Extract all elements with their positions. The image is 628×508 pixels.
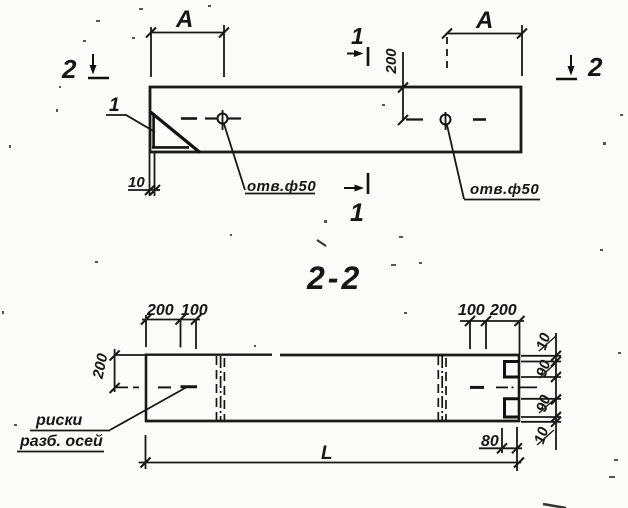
svg-text:10: 10: [128, 174, 145, 191]
svg-text:2: 2: [587, 52, 603, 82]
svg-text:200: 200: [489, 302, 517, 319]
svg-text:200: 200: [383, 48, 400, 75]
svg-text:риски: риски: [35, 412, 83, 429]
svg-text:L: L: [321, 443, 333, 464]
svg-text:отв.ф50: отв.ф50: [247, 178, 316, 195]
svg-text:100: 100: [458, 302, 485, 319]
svg-text:A: A: [175, 6, 193, 33]
svg-text:2-2: 2-2: [306, 260, 362, 296]
svg-text:разб. осей: разб. осей: [19, 433, 103, 450]
svg-text:2: 2: [61, 54, 77, 84]
svg-text:1: 1: [350, 199, 364, 227]
svg-text:1: 1: [351, 23, 364, 49]
svg-text:100: 100: [181, 302, 208, 319]
svg-text:A: A: [475, 7, 493, 34]
svg-text:1: 1: [109, 95, 120, 116]
svg-text:200: 200: [146, 302, 174, 319]
svg-text:80: 80: [481, 433, 499, 450]
svg-text:отв.ф50: отв.ф50: [470, 181, 539, 198]
